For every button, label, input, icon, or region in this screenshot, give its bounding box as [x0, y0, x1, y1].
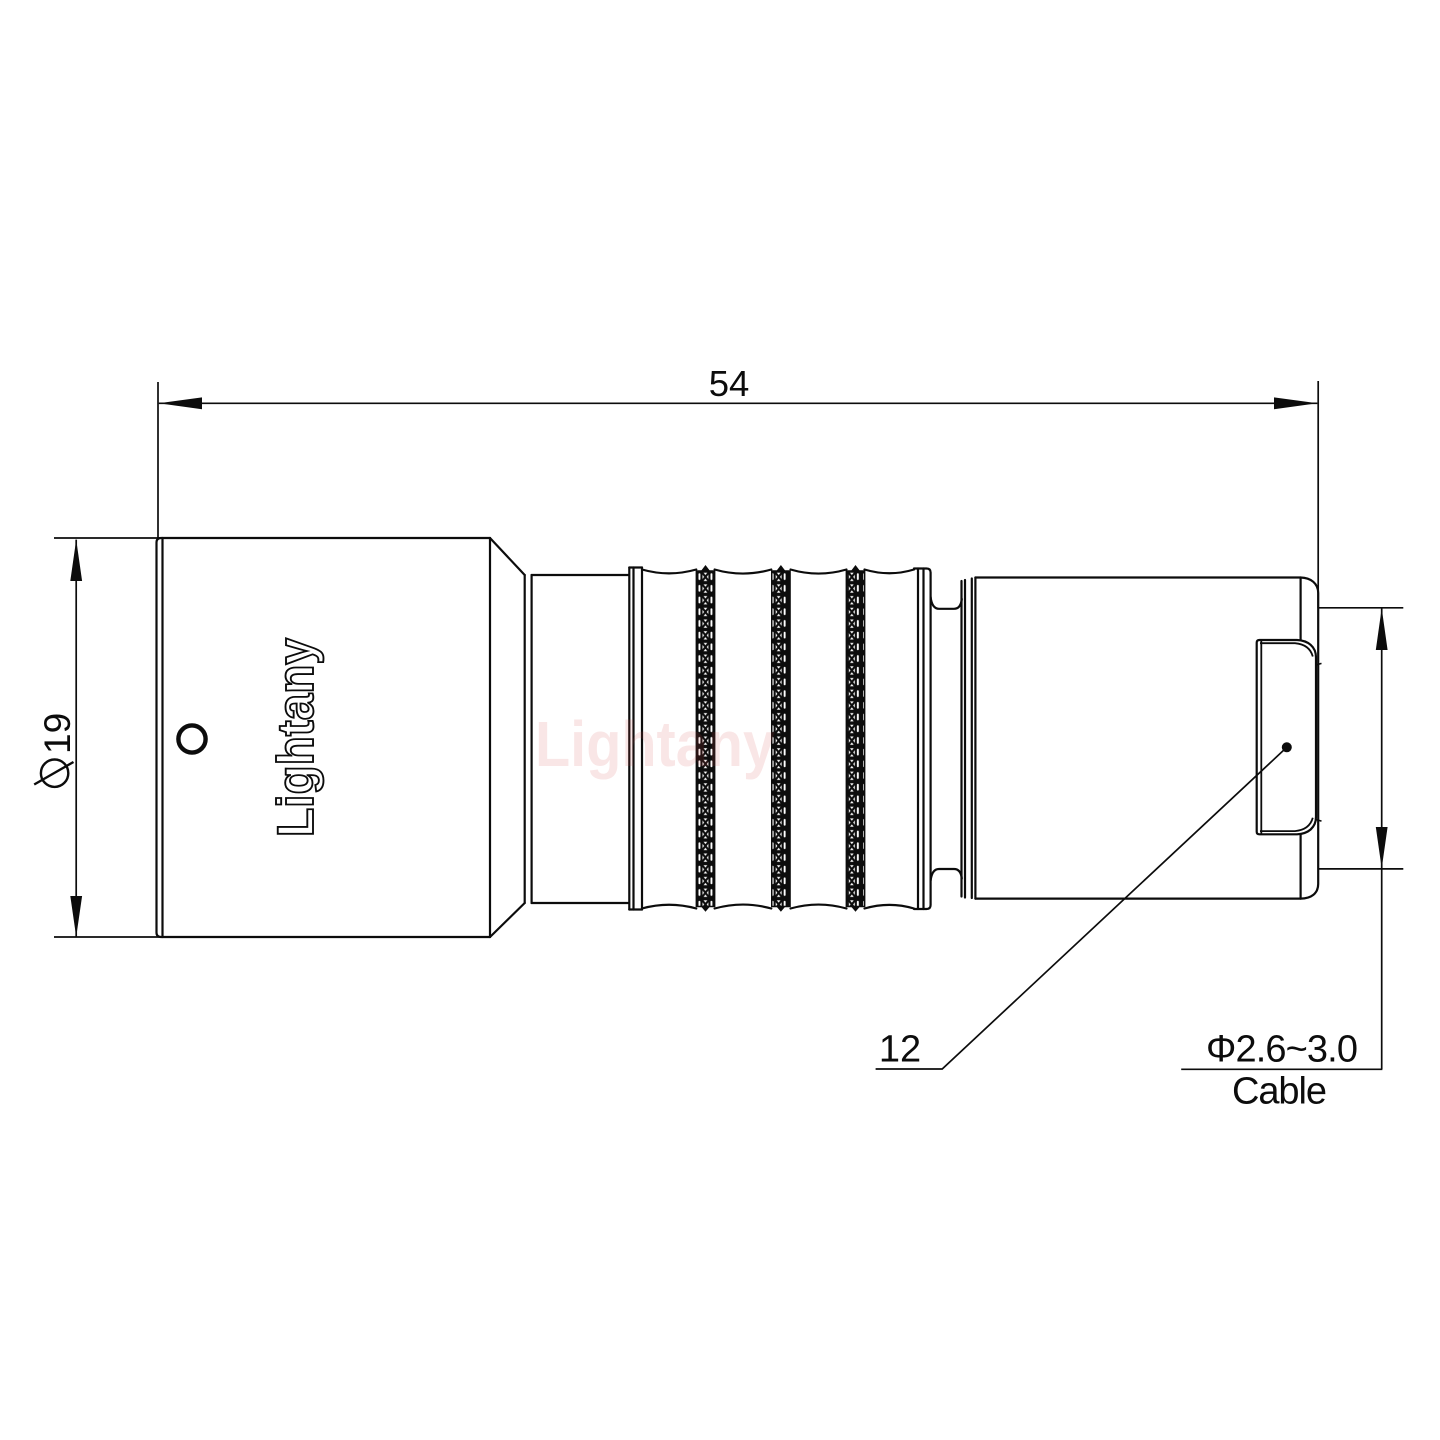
svg-text:Φ2.6~3.0: Φ2.6~3.0 [1206, 1029, 1358, 1071]
svg-text:Lightany: Lightany [267, 637, 324, 837]
svg-text:12: 12 [879, 1029, 921, 1071]
svg-text:Lightany: Lightany [535, 708, 775, 780]
svg-text:54: 54 [709, 363, 750, 404]
svg-text:19: 19 [37, 713, 78, 754]
svg-text:Cable: Cable [1232, 1071, 1327, 1113]
